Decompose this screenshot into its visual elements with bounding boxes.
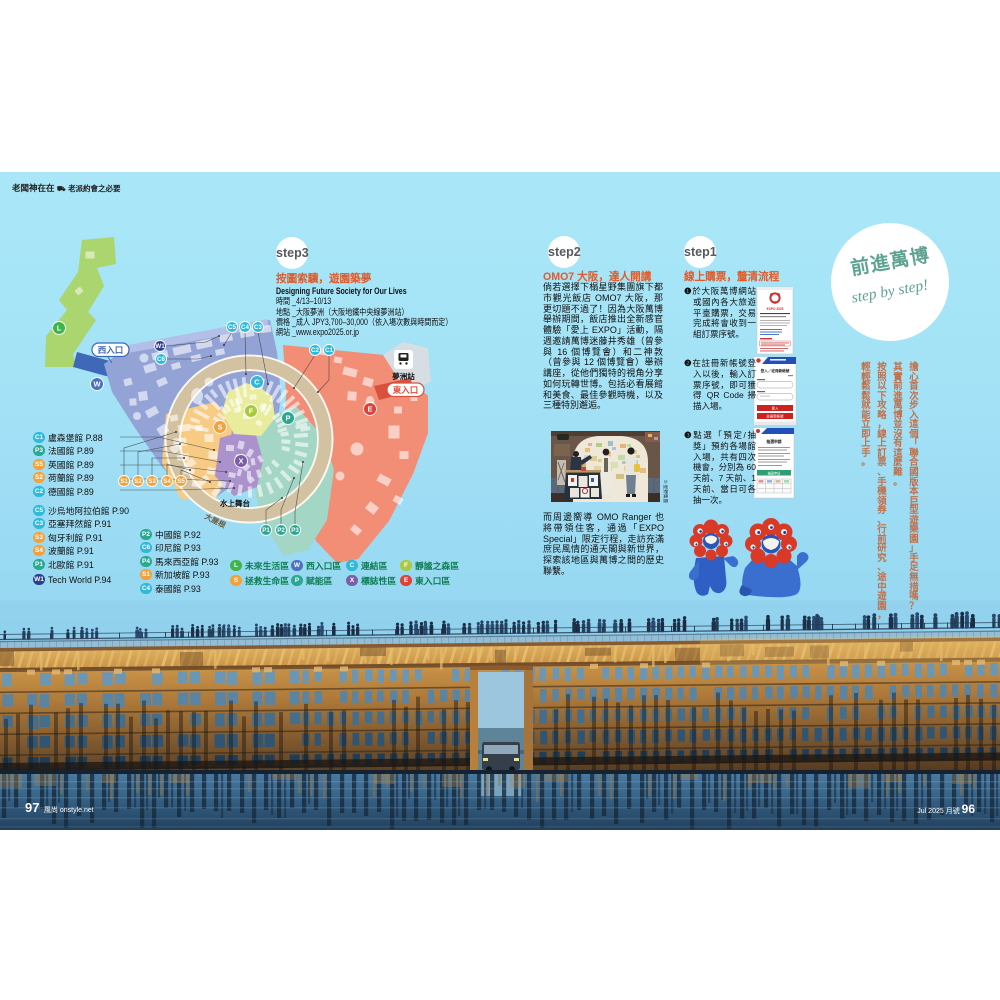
svg-text:© 星野集團: © 星野集團 bbox=[662, 480, 669, 503]
svg-text:EXPO 2025: EXPO 2025 bbox=[767, 307, 784, 311]
svg-text:抽選申請: 抽選申請 bbox=[768, 470, 782, 475]
svg-text:註冊新帳號: 註冊新帳號 bbox=[767, 414, 785, 419]
svg-text:登入／註冊新帳號: 登入／註冊新帳號 bbox=[760, 368, 790, 373]
svg-text:登入: 登入 bbox=[772, 406, 779, 411]
svg-text:抽選申請: 抽選申請 bbox=[765, 439, 781, 444]
